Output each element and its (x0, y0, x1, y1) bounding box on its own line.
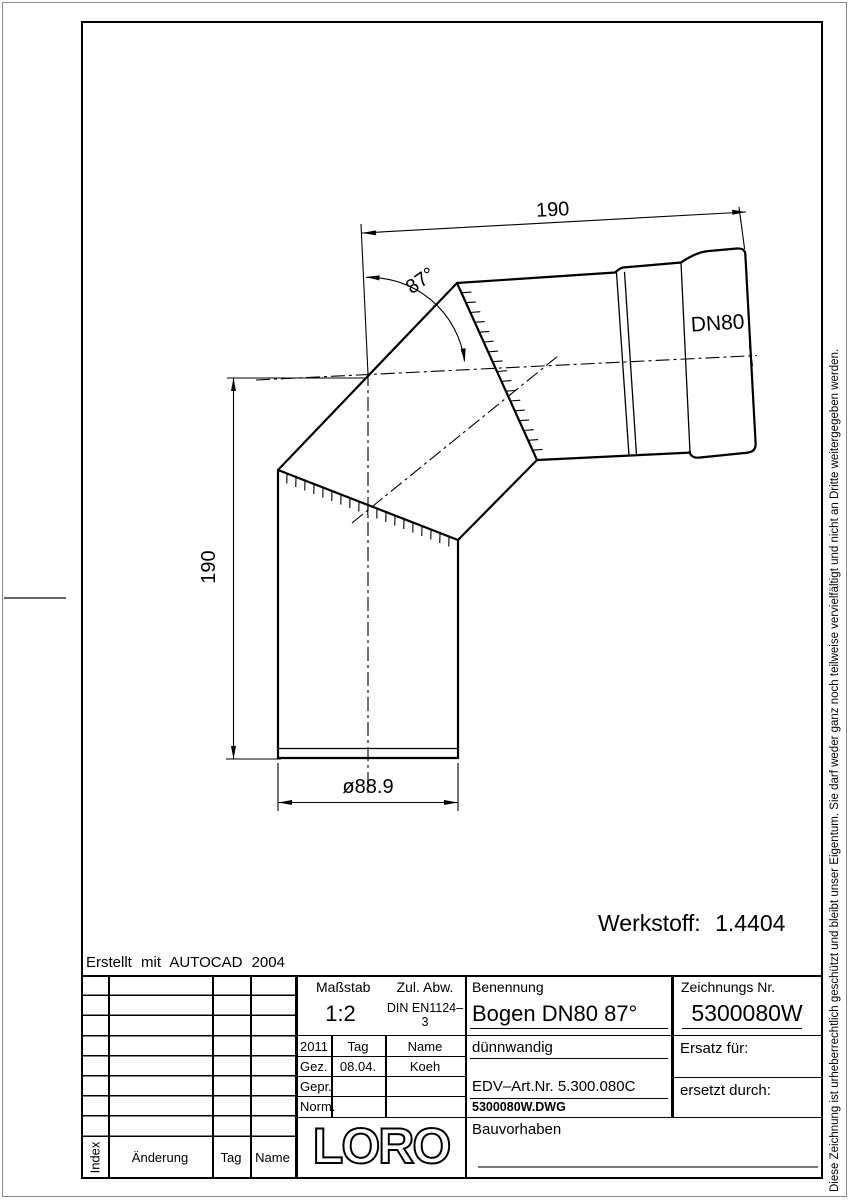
revision-row-lines (82, 976, 295, 1137)
dim-diameter-text: ø88.9 (342, 776, 393, 798)
approval-col-tag: Tag (331, 1038, 385, 1054)
approval-gepr-label: Gepr. (300, 1079, 332, 1094)
bauvorhaben-underline (478, 1166, 818, 1168)
subtitle: dünnwandig (472, 1039, 553, 1056)
revision-col-name: Name (250, 1136, 295, 1178)
benennung-underline (470, 1028, 668, 1029)
ersetzt-durch-label: ersetzt durch: (680, 1082, 771, 1099)
dim-left-text: 190 (198, 550, 220, 583)
loro-logo: LORO (300, 1120, 462, 1175)
massstab-value: 1:2 (296, 998, 385, 1030)
centerline-horizontal (256, 356, 757, 381)
zul-abw-value: DIN EN1124–3 (385, 1006, 465, 1024)
massstab-label: Maßstab (316, 979, 370, 995)
centerlines (256, 356, 757, 798)
weld-hatch-upper (461, 292, 542, 450)
revision-col-aenderung: Änderung (108, 1136, 212, 1178)
werkstoff-note: Werkstoff: 1.4404 (598, 910, 785, 937)
tb-divider-3 (671, 976, 674, 1117)
tb-hline-1 (295, 1035, 822, 1037)
top-pipe-socket (457, 248, 756, 457)
benennung-label: Benennung (472, 979, 544, 995)
dwg-file: 5300080W.DWG (472, 1100, 566, 1114)
tb-right-hline (672, 1077, 822, 1079)
zeichnungs-underline (682, 1028, 802, 1029)
approval-gez-tag: 08.04. (331, 1058, 385, 1074)
dimension-arrows (231, 210, 746, 805)
pipe-detail-lines (279, 263, 690, 749)
revision-col-tag: Tag (212, 1136, 250, 1178)
ext-line-left-top (361, 224, 368, 374)
zeichnungs-value: 5300080W (672, 999, 822, 1027)
socket-shoulder-line (681, 263, 690, 453)
approval-gez-name: Koeh (385, 1058, 465, 1074)
dimension-texts: 190 190 ø88.9 87° DN80 (198, 198, 745, 798)
tb-approval-line-1 (296, 1056, 465, 1058)
tb-approval-line-3 (296, 1096, 465, 1098)
approval-norm-label: Norm. (300, 1099, 335, 1114)
ext-line-right-top (739, 207, 745, 249)
dim-top-text: 190 (535, 198, 569, 222)
top-pipe-bottom-edge (537, 453, 690, 460)
edv-underline (470, 1098, 668, 1099)
benennung-value: Bogen DN80 87° (472, 1001, 637, 1027)
drawing-sheet: { "page": { "created_with": "Erstellt mi… (0, 0, 850, 1200)
inner-elbow-edge (458, 460, 537, 540)
approval-year: 2011 (300, 1039, 328, 1054)
dim-angle-text: 87° (402, 263, 439, 298)
bead-line-2 (625, 272, 637, 455)
revision-col-index: Index (82, 1136, 108, 1178)
created-with-note: Erstellt mit AUTOCAD 2004 (86, 954, 285, 971)
tb-hline-2 (295, 1117, 822, 1119)
zul-abw-label: Zul. Abw. (385, 979, 465, 995)
ersatz-fuer-label: Ersatz für: (680, 1040, 748, 1057)
dn-label: DN80 (690, 310, 745, 336)
zeichnungs-label: Zeichnungs Nr. (681, 979, 775, 995)
approval-gez-label: Gez. (300, 1059, 327, 1074)
tb-approval-line-2 (296, 1076, 465, 1078)
bead-line-1 (617, 272, 630, 455)
bauvorhaben-label: Bauvorhaben (472, 1121, 561, 1138)
subtitle-underline (470, 1058, 668, 1059)
approval-col-name: Name (385, 1038, 465, 1054)
svg-text:LORO: LORO (313, 1120, 450, 1174)
copyright-vertical-text: Diese Zeichnung ist urheberrechtlich ges… (829, 312, 841, 1192)
edv-art-nr: EDV–Art.Nr. 5.300.080C (472, 1078, 635, 1095)
